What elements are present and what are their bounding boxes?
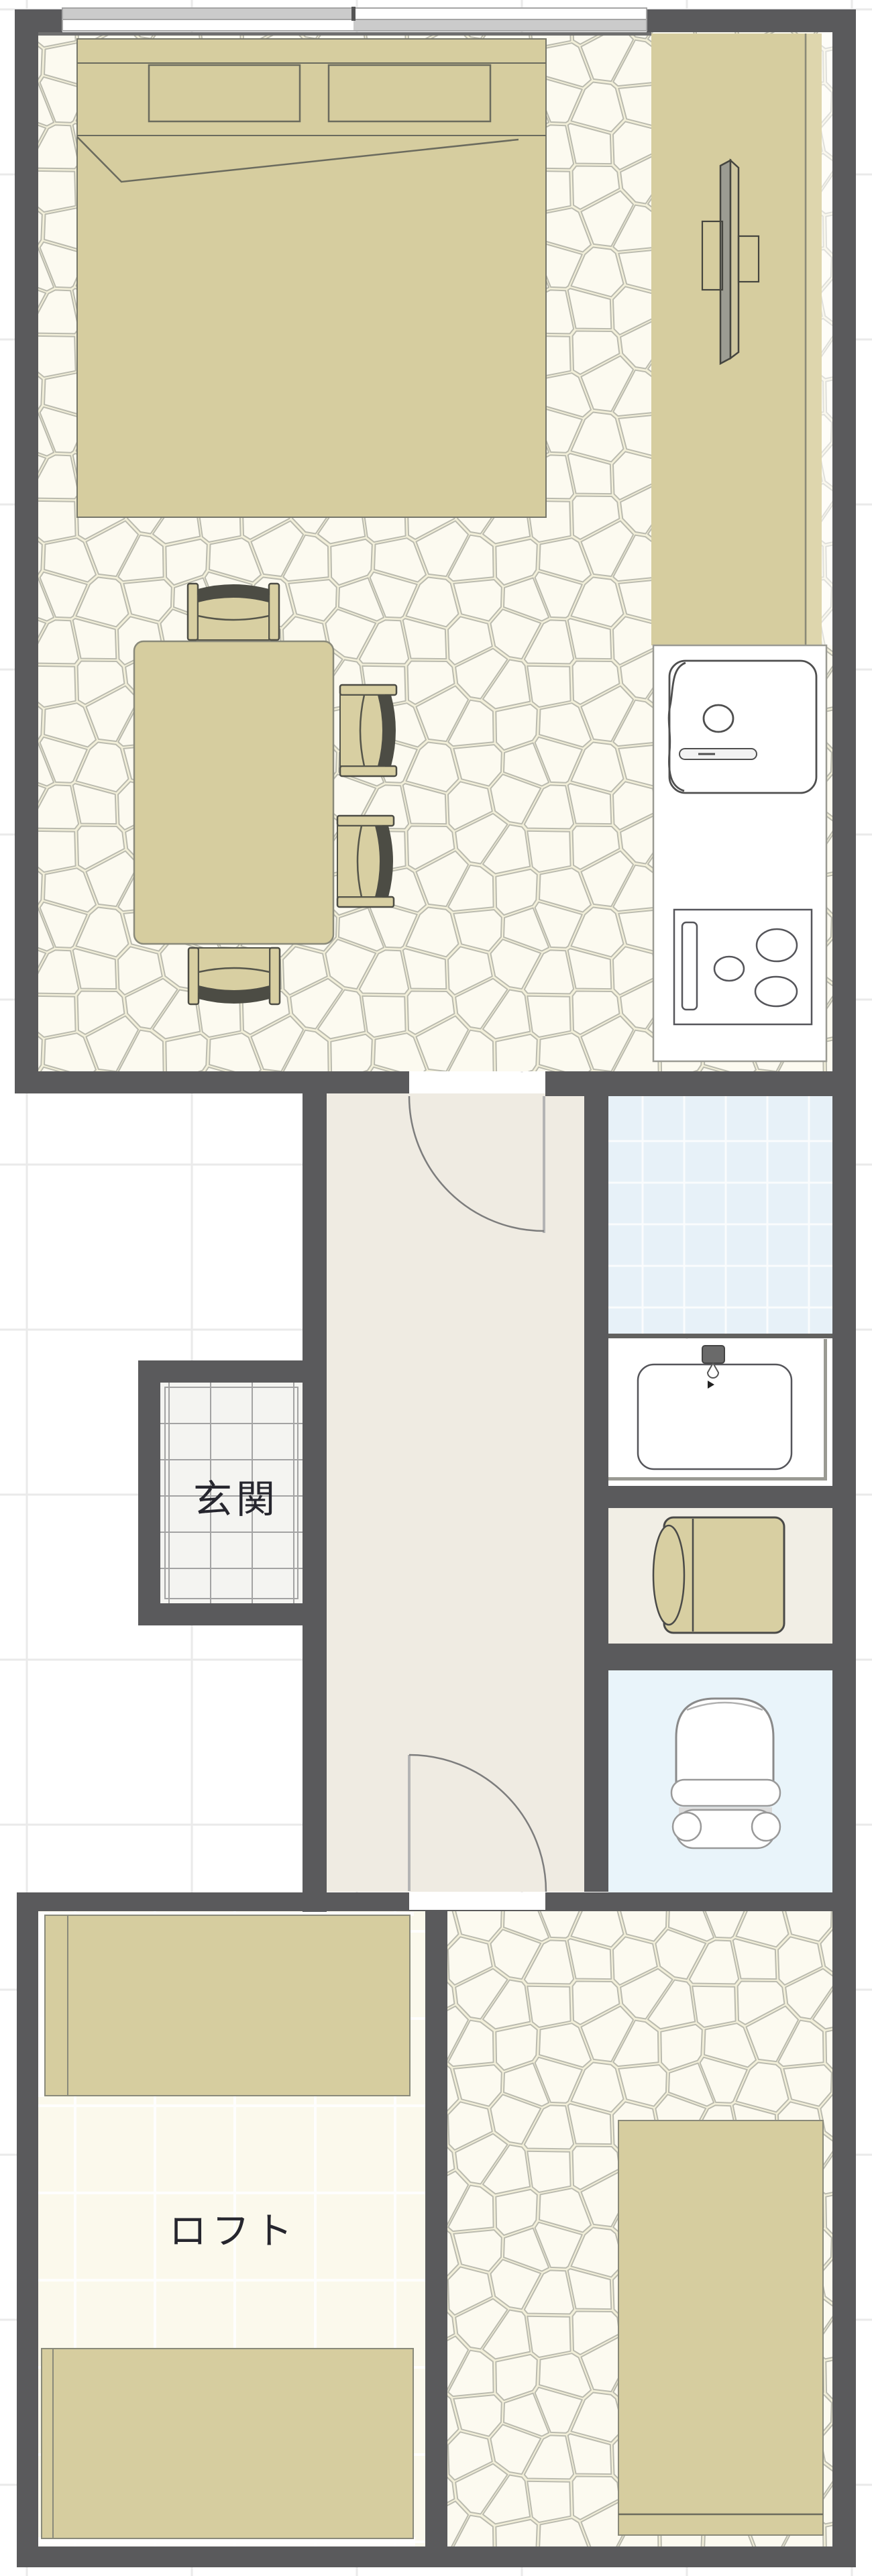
svg-text:玄関: 玄関 — [193, 1478, 279, 1521]
svg-text:ロフト: ロフト — [169, 2210, 298, 2252]
